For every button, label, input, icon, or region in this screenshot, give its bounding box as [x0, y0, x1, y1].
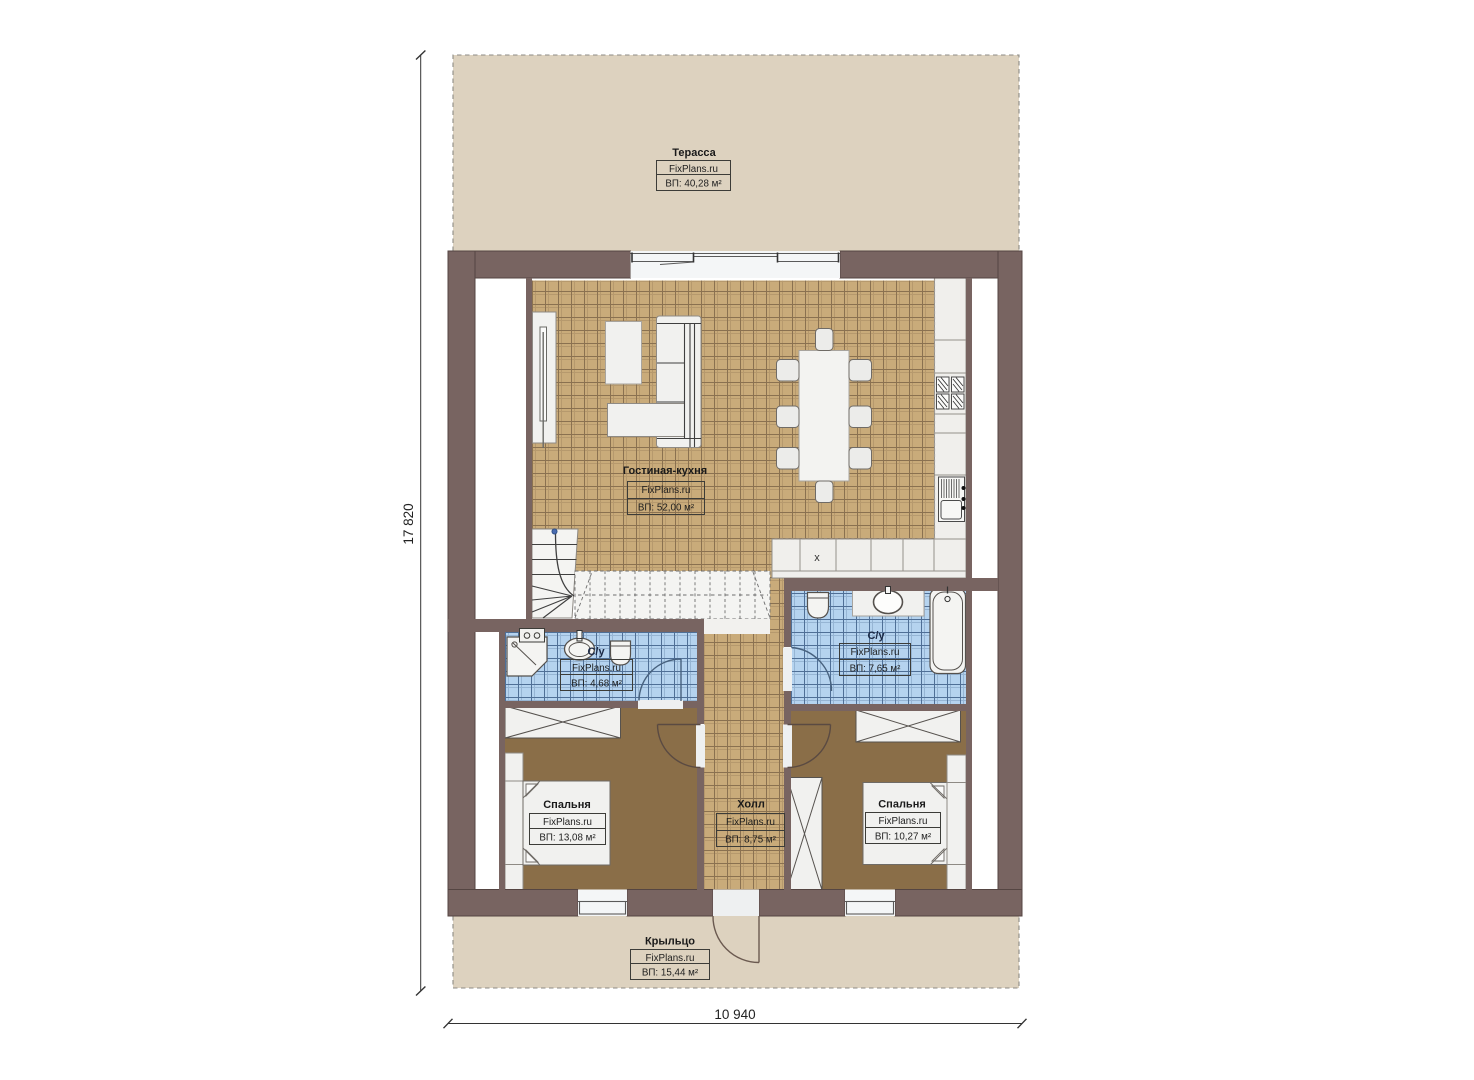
svg-text:Холл: Холл	[737, 799, 765, 811]
svg-text:Гостиная-кухня: Гостиная-кухня	[623, 465, 707, 477]
svg-text:FixPlans.ru: FixPlans.ru	[572, 663, 621, 674]
svg-text:FixPlans.ru: FixPlans.ru	[642, 485, 691, 496]
svg-text:FixPlans.ru: FixPlans.ru	[726, 817, 775, 828]
svg-text:FixPlans.ru: FixPlans.ru	[879, 816, 928, 827]
svg-text:С/у: С/у	[867, 630, 885, 642]
svg-text:FixPlans.ru: FixPlans.ru	[851, 647, 900, 658]
svg-text:ВП: 4,68 м²: ВП: 4,68 м²	[571, 679, 623, 690]
svg-text:Спальня: Спальня	[878, 799, 926, 811]
svg-text:x: x	[814, 552, 820, 564]
svg-text:ВП: 10,27 м²: ВП: 10,27 м²	[875, 832, 932, 843]
svg-text:ВП: 8,75 м²: ВП: 8,75 м²	[725, 835, 777, 846]
svg-text:ВП: 13,08 м²: ВП: 13,08 м²	[539, 833, 596, 844]
svg-text:С/у: С/у	[587, 646, 605, 658]
svg-text:17 820: 17 820	[401, 503, 416, 544]
svg-text:ВП: 7,65 м²: ВП: 7,65 м²	[850, 664, 902, 675]
svg-text:FixPlans.ru: FixPlans.ru	[543, 817, 592, 828]
svg-text:FixPlans.ru: FixPlans.ru	[646, 953, 695, 964]
svg-text:FixPlans.ru: FixPlans.ru	[669, 164, 718, 175]
svg-text:ВП: 52,00 м²: ВП: 52,00 м²	[638, 503, 695, 514]
svg-text:ВП: 40,28 м²: ВП: 40,28 м²	[665, 179, 722, 190]
svg-text:Крыльцо: Крыльцо	[645, 936, 695, 948]
svg-text:ВП: 15,44 м²: ВП: 15,44 м²	[642, 968, 699, 979]
svg-text:Терасса: Терасса	[672, 147, 716, 159]
svg-text:Спальня: Спальня	[543, 799, 591, 811]
svg-text:10 940: 10 940	[714, 1007, 755, 1022]
